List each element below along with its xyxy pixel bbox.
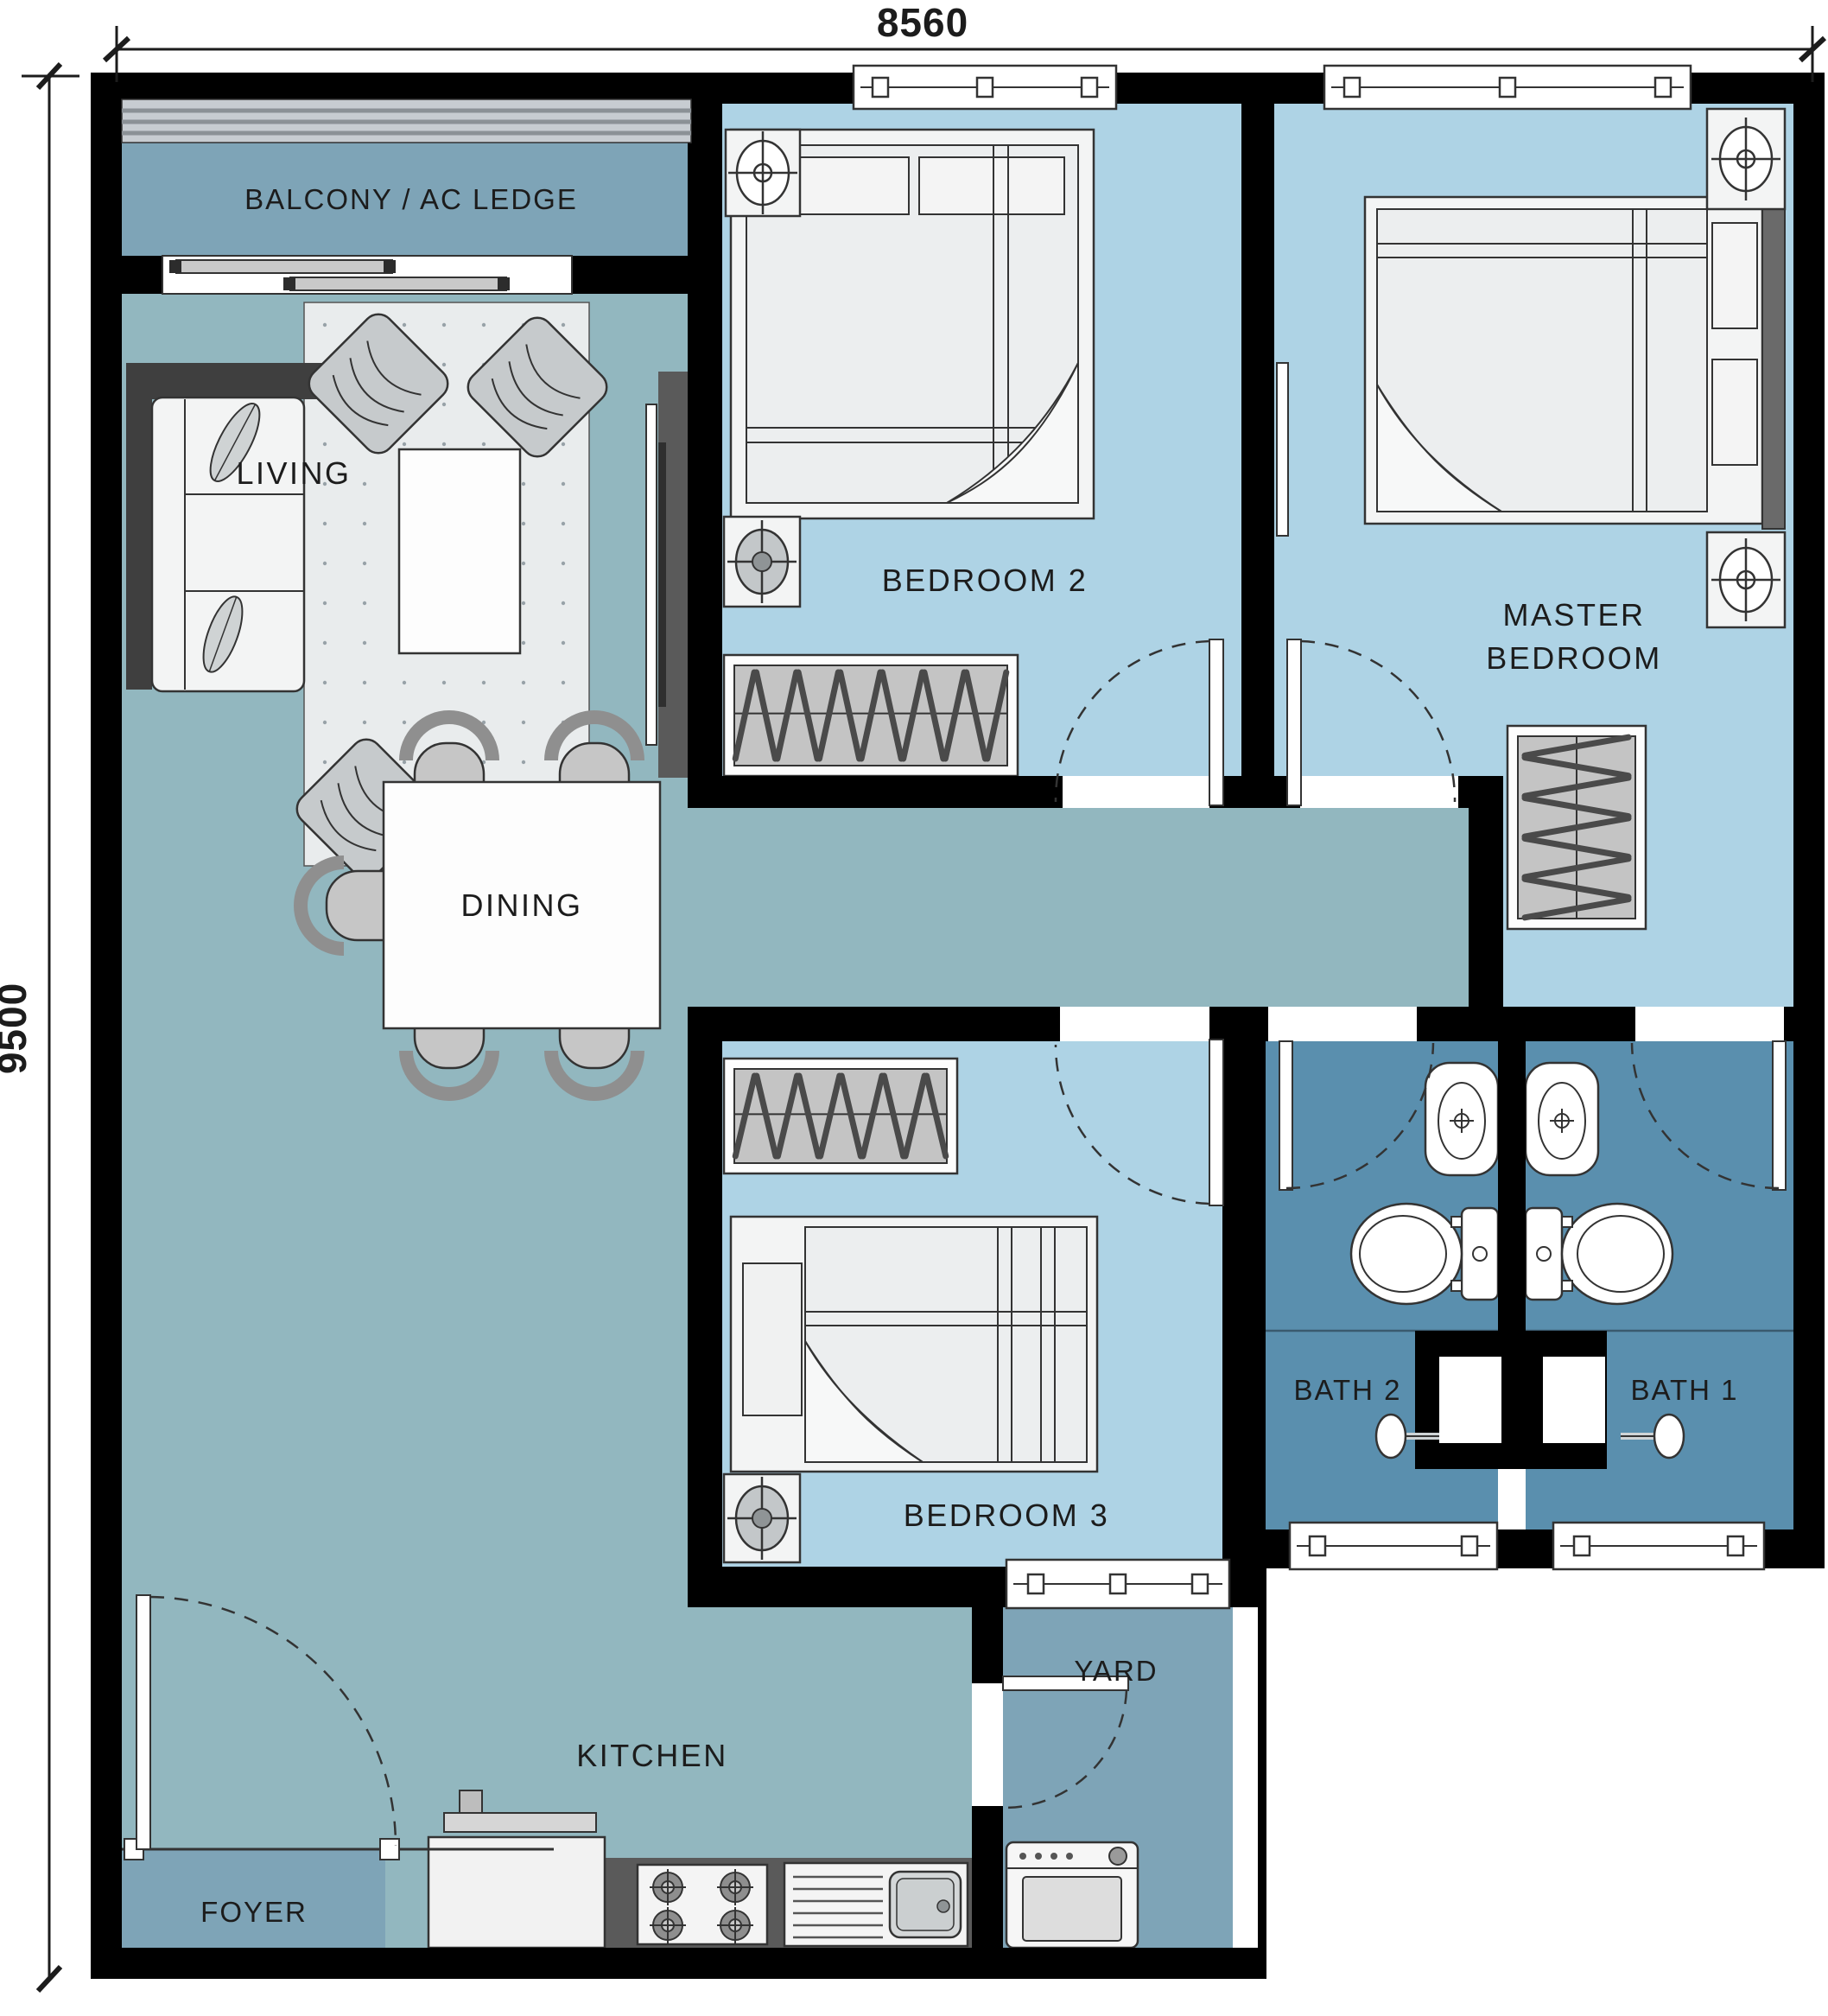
balcony-louvre — [122, 99, 691, 143]
tv-panel — [646, 404, 657, 745]
bath2-sink — [1425, 1063, 1498, 1175]
foyer-label: FOYER — [200, 1896, 308, 1928]
balcony-label: BALCONY / AC LEDGE — [244, 183, 578, 215]
bath2-window — [1290, 1523, 1497, 1569]
yard-window — [1006, 1560, 1229, 1608]
master-label-line2: BEDROOM — [1486, 640, 1662, 676]
bath1-toilet — [1526, 1204, 1672, 1304]
master-window — [1324, 66, 1691, 109]
bedroom2-label: BEDROOM 2 — [882, 563, 1089, 598]
bath2-label: BATH 2 — [1293, 1374, 1401, 1406]
bath2-toilet — [1351, 1204, 1498, 1304]
sofa — [152, 397, 304, 691]
kitchen-label: KITCHEN — [576, 1738, 728, 1773]
coffee-table — [399, 449, 520, 653]
washing-machine — [1006, 1842, 1138, 1948]
balcony-sliding-door — [162, 256, 572, 294]
fridge — [428, 1790, 605, 1948]
bedroom2-window — [854, 66, 1116, 109]
master-pillow — [1712, 359, 1757, 465]
master-pillow — [1712, 223, 1757, 328]
tv-screen — [658, 442, 666, 707]
bath1-sink — [1526, 1063, 1598, 1175]
bath1-window — [1553, 1523, 1764, 1569]
master-wardrobe — [1507, 726, 1646, 929]
bath1-label: BATH 1 — [1630, 1374, 1738, 1406]
master-headboard — [1762, 192, 1785, 529]
stove — [638, 1865, 767, 1944]
width-dimension: 8560 — [877, 0, 968, 45]
bed3-pillow — [743, 1263, 802, 1415]
height-dimension: 9500 — [0, 983, 35, 1074]
bedroom3-label: BEDROOM 3 — [904, 1498, 1110, 1533]
living-label: LIVING — [236, 455, 351, 491]
dining-label: DINING — [461, 887, 583, 923]
master-label-line1: MASTER — [1502, 597, 1645, 633]
bed2-pillow — [919, 157, 1064, 214]
floor-plan: BALCONY / AC LEDGE LIVING BEDROOM 2 MAST… — [0, 0, 1828, 2016]
bed3-wardrobe — [724, 1059, 957, 1173]
master-tv-panel — [1277, 363, 1288, 536]
yard-label: YARD — [1074, 1655, 1158, 1687]
bed2-wardrobe — [724, 655, 1018, 776]
kitchen-sink — [784, 1863, 968, 1946]
